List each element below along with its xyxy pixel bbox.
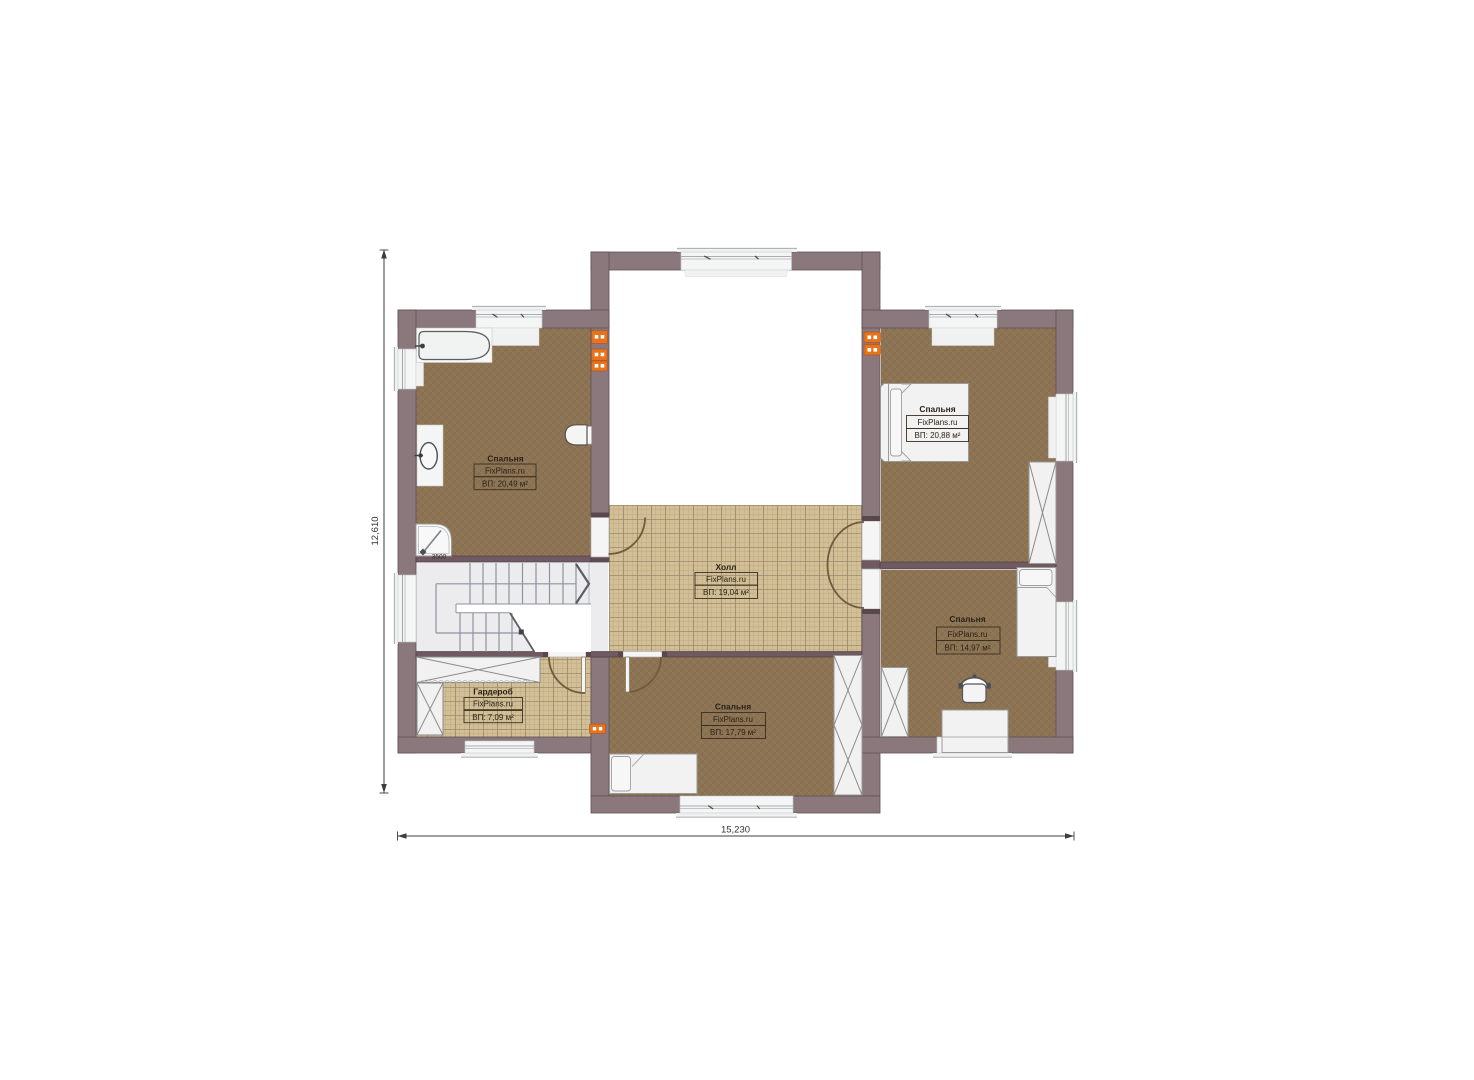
svg-text:ВП: 14,97 м²: ВП: 14,97 м² (945, 644, 991, 653)
svg-text:ВП: 20,49 м²: ВП: 20,49 м² (482, 480, 528, 489)
svg-text:Гардероб: Гардероб (473, 687, 513, 697)
svg-text:Спальня: Спальня (919, 404, 955, 414)
svg-text:FixPlans.ru: FixPlans.ru (713, 715, 753, 724)
svg-text:FixPlans.ru: FixPlans.ru (706, 575, 746, 584)
svg-text:ВП: 20,88 м²: ВП: 20,88 м² (915, 431, 961, 440)
svg-text:FixPlans.ru: FixPlans.ru (473, 700, 513, 709)
svg-text:ВП: 19,04 м²: ВП: 19,04 м² (703, 588, 749, 597)
svg-text:3500: 3500 (432, 554, 447, 561)
svg-text:FixPlans.ru: FixPlans.ru (485, 467, 525, 476)
svg-text:Спальня: Спальня (715, 702, 751, 712)
svg-text:FixPlans.ru: FixPlans.ru (947, 630, 987, 639)
svg-text:Спальня: Спальня (487, 454, 523, 464)
svg-text:ВП: 17,79 м²: ВП: 17,79 м² (710, 728, 756, 737)
svg-text:12,610: 12,610 (370, 516, 381, 545)
svg-text:FixPlans.ru: FixPlans.ru (917, 418, 957, 427)
svg-text:ВП: 7,09 м²: ВП: 7,09 м² (472, 713, 514, 722)
svg-text:15,230: 15,230 (721, 825, 750, 836)
svg-text:Холл: Холл (715, 562, 736, 572)
svg-text:Спальня: Спальня (949, 614, 985, 624)
